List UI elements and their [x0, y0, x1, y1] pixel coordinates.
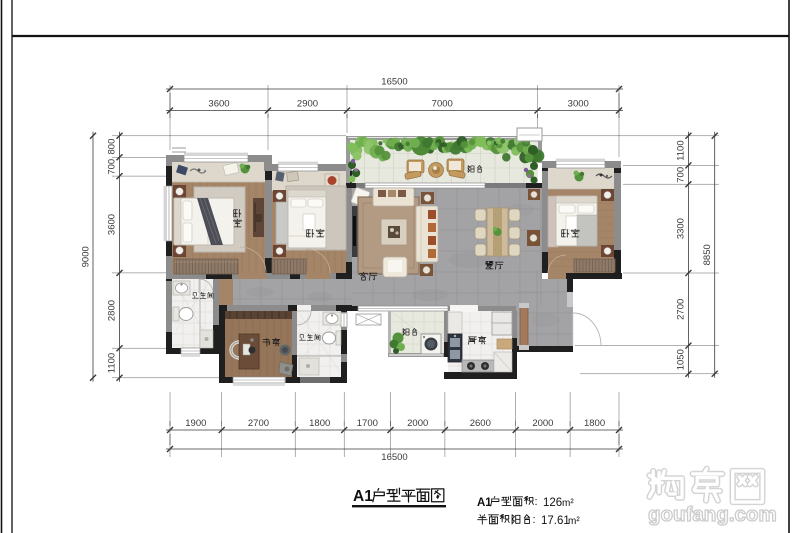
svg-text:3000: 3000	[568, 99, 589, 110]
svg-text:m²: m²	[562, 498, 574, 509]
svg-text:800: 800	[107, 139, 118, 155]
svg-text:2700: 2700	[248, 418, 269, 429]
svg-text:2600: 2600	[470, 418, 491, 429]
svg-text:126: 126	[543, 497, 562, 509]
svg-text:9000: 9000	[81, 246, 92, 267]
svg-text:A1: A1	[477, 497, 492, 509]
svg-text:700: 700	[675, 167, 686, 183]
svg-text:1800: 1800	[584, 418, 605, 429]
svg-text:2000: 2000	[407, 418, 428, 429]
svg-text:8850: 8850	[702, 244, 713, 265]
svg-text:16500: 16500	[381, 77, 407, 88]
svg-text:2000: 2000	[532, 418, 553, 429]
svg-text:1100: 1100	[107, 353, 118, 373]
svg-text:3300: 3300	[675, 218, 686, 239]
svg-text:goufang.com: goufang.com	[648, 503, 777, 526]
svg-text:1900: 1900	[185, 418, 206, 429]
svg-text::: :	[532, 514, 535, 526]
svg-text:2900: 2900	[297, 99, 318, 110]
svg-text:3600: 3600	[208, 99, 229, 110]
svg-text:1800: 1800	[309, 418, 330, 429]
svg-text:2800: 2800	[107, 300, 118, 321]
svg-text:7000: 7000	[432, 99, 453, 110]
svg-text:A1: A1	[353, 488, 373, 505]
svg-text:700: 700	[107, 159, 118, 175]
svg-text::: :	[534, 496, 537, 508]
svg-text:1700: 1700	[357, 418, 378, 429]
svg-text:17.61: 17.61	[541, 515, 570, 527]
svg-text:1050: 1050	[675, 349, 686, 370]
svg-text:m²: m²	[568, 516, 580, 527]
svg-text:2700: 2700	[675, 299, 686, 320]
svg-text:1100: 1100	[675, 140, 686, 160]
svg-text:16500: 16500	[381, 452, 407, 463]
svg-text:3600: 3600	[107, 214, 118, 235]
